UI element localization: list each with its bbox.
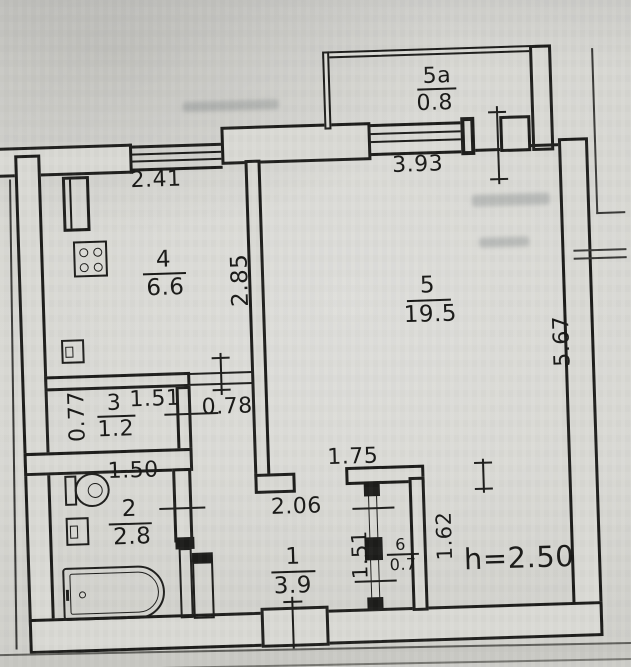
room-1-area: 3.9: [273, 572, 312, 599]
kitchen-window-line: [131, 143, 222, 149]
dim-bath-width: 1.50: [107, 457, 159, 484]
dimension-tick: [474, 461, 492, 464]
dim-right-wall: 5.67: [549, 315, 576, 367]
living-window-line: [369, 121, 462, 127]
dim-room3-width: 1.51: [129, 386, 181, 413]
ceiling-height-note: h=2.50: [463, 539, 574, 576]
neighbor-wall-line: [596, 211, 625, 214]
room-3-number: 3: [106, 391, 121, 416]
entrance-door-tick: [283, 600, 302, 603]
dimension-tick: [475, 487, 493, 490]
floor-plan-drawing: 5a 0.8 2.41 3.93 4 6.6 2.85 5 19.5 5.67 …: [0, 0, 631, 667]
dim-hall-top-wall: 1.75: [327, 444, 379, 471]
dimension-tick: [490, 178, 508, 181]
closet-partition-post: [364, 483, 380, 496]
bleed-through-mark: [183, 99, 279, 112]
stove-burner: [93, 248, 102, 257]
room-5a-area: 0.8: [416, 90, 453, 116]
stove-burner: [80, 263, 89, 272]
entrance-door-pier: [261, 606, 330, 648]
kitchen-living-wall: [244, 160, 270, 494]
dim-hall-width: 2.06: [270, 493, 322, 520]
dim-room3-height: 0.77: [64, 391, 91, 443]
left-wall: [14, 155, 56, 652]
kitchen-sink-icon: [61, 339, 85, 364]
dim-kitchen-door: 0.78: [201, 393, 253, 420]
dim-closet-left: 1.51: [347, 530, 373, 579]
basin-tap: [70, 526, 78, 539]
dimension-tick: [213, 389, 231, 392]
balcony-left-wall: [322, 51, 331, 129]
vent-duct-icon: [62, 176, 91, 232]
kitchen-sink-tap: [65, 347, 73, 358]
window-post: [460, 117, 475, 155]
room-6-area: 0.7: [389, 554, 417, 574]
stove-burner: [79, 248, 88, 257]
dim-closet-right: 1.62: [432, 511, 458, 560]
living-window-line: [370, 138, 463, 143]
room-3-area: 1.2: [97, 416, 134, 442]
living-window-line: [370, 130, 463, 135]
kitchen-living-wall-foot: [254, 473, 296, 494]
room-1-number: 1: [285, 544, 301, 570]
stove-burner: [94, 263, 103, 272]
room-5-area: 19.5: [403, 301, 457, 329]
room-2-number: 2: [121, 496, 137, 522]
closet-right-wall: [408, 477, 428, 611]
room-5a-number: 5a: [422, 63, 451, 89]
bleed-through-mark: [472, 193, 550, 207]
closet-partition-post: [367, 597, 383, 610]
bath-right-wall: [172, 468, 193, 543]
room-4-area: 6.6: [146, 274, 185, 301]
room-2-area: 2.8: [113, 523, 152, 550]
bathtub-tap: [66, 590, 69, 601]
dim-kitchen-depth: 2.85: [226, 253, 254, 307]
neighbor-wall-line: [574, 256, 627, 260]
wall-pier: [220, 122, 371, 165]
dim-kitchen-window: 2.41: [130, 167, 182, 194]
hall-door-leaf: [192, 552, 215, 619]
basin-icon: [66, 517, 90, 546]
kitchen-window-line: [131, 158, 222, 163]
stove-icon: [73, 240, 108, 277]
neighbor-wall-line: [573, 248, 626, 252]
kitchen-window-line: [131, 151, 222, 156]
room-6-number: 6: [395, 535, 406, 554]
balcony-top-wall: [322, 45, 548, 59]
room-4-number: 4: [156, 246, 172, 272]
bleed-through-mark: [479, 236, 529, 248]
wall-pier-small: [499, 115, 531, 152]
dimension-tick: [212, 357, 230, 360]
neighbor-wall-line: [591, 48, 598, 214]
dim-living-window: 3.93: [392, 151, 444, 178]
floor-plan-photo: 5a 0.8 2.41 3.93 4 6.6 2.85 5 19.5 5.67 …: [0, 0, 631, 667]
room-5-number: 5: [419, 272, 435, 298]
balcony-right-wall: [529, 44, 554, 151]
dimension-tick: [488, 111, 506, 114]
